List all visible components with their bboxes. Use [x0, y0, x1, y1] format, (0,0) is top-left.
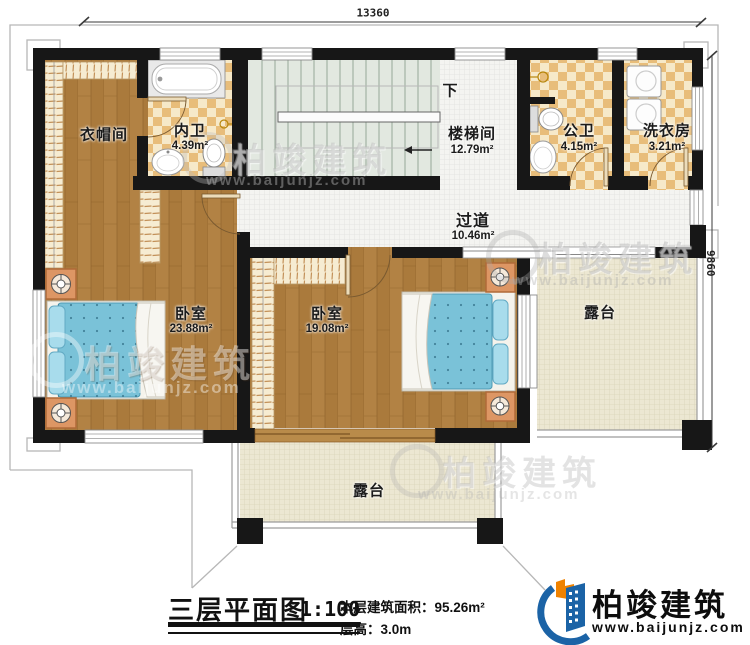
- bed-left: [47, 301, 165, 399]
- room-label-stairwell: 楼梯间: [448, 123, 496, 144]
- dimension-top: 13360: [356, 7, 389, 20]
- room-label-public-bath: 公卫: [563, 120, 595, 141]
- room-area-corridor: 10.46m²: [452, 230, 495, 242]
- floor-height-text: 层高：3.0m: [340, 618, 411, 638]
- room-label-bedroom-right: 卧室: [311, 303, 343, 324]
- room-area-bedroom-left: 23.88m²: [170, 323, 213, 335]
- room-label-cloakroom: 衣帽间: [80, 124, 128, 145]
- sliding-door-bedroom-terrace: [255, 429, 435, 442]
- room-area-laundry: 3.21m²: [649, 141, 685, 153]
- floor-plan-drawing: [0, 0, 750, 645]
- brand-logo-icon: [541, 579, 588, 642]
- floor-plan: 柏竣建筑 www.baijunjz.com 柏竣建筑 www.baijunjz.…: [0, 0, 750, 645]
- room-label-laundry: 洗衣房: [643, 120, 691, 141]
- room-area-public-bath: 4.15m²: [561, 141, 597, 153]
- room-area-inner-bath: 4.39m²: [172, 140, 208, 152]
- room-label-inner-bath: 内卫: [174, 120, 206, 141]
- room-label-terrace-bottom: 露台: [353, 480, 385, 501]
- dimension-right: 9860: [704, 250, 717, 277]
- room-area-bedroom-right: 19.08m²: [306, 323, 349, 335]
- brand-website: www.baijunjz.com: [592, 619, 745, 635]
- room-label-bedroom-left: 卧室: [175, 303, 207, 324]
- title-underline-thick: [168, 622, 360, 627]
- bathtub: [148, 60, 225, 98]
- room-label-terrace-right: 露台: [584, 302, 616, 323]
- staircase: [248, 60, 440, 176]
- title-underline-thin: [168, 632, 360, 634]
- sliding-door-corridor-terrace: [463, 247, 655, 258]
- stair-down-label: 下: [442, 80, 457, 101]
- bed-right: [402, 292, 515, 391]
- floor-area-text: 本层建筑面积：95.26m²: [340, 596, 485, 616]
- room-area-stairwell: 12.79m²: [451, 144, 494, 156]
- room-label-corridor: 过道: [456, 207, 490, 231]
- inner-bath-sink: [152, 149, 184, 175]
